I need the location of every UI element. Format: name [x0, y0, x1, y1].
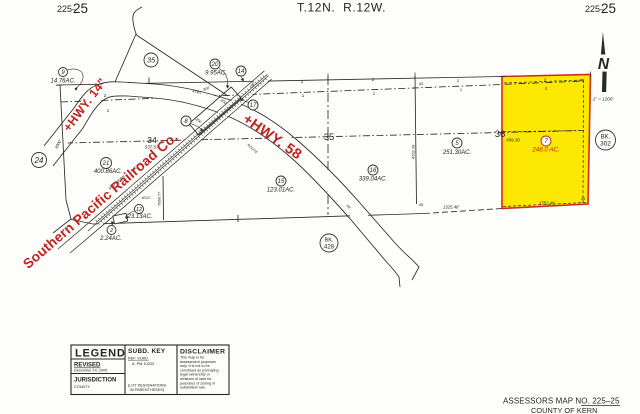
svg-text:300': 300' — [202, 86, 210, 92]
svg-text:T.12N. R.12W.: T.12N. R.12W. — [297, 1, 386, 15]
svg-text:December 14, 2005: December 14, 2005 — [74, 369, 107, 373]
svg-text:45: 45 — [419, 202, 424, 207]
svg-text:21: 21 — [102, 161, 110, 167]
svg-text:1: 1 — [107, 108, 110, 113]
svg-text:ROUTE: ROUTE — [246, 143, 258, 155]
svg-text:2: 2 — [301, 79, 304, 84]
svg-text:1752.46': 1752.46' — [539, 201, 556, 206]
svg-text:ASSESSORS MAP NO. 225–25: ASSESSORS MAP NO. 225–25 — [503, 397, 620, 406]
svg-text:251.30AC.: 251.30AC. — [442, 150, 471, 156]
svg-text:A. PM 10333: A. PM 10333 — [132, 362, 154, 366]
svg-text:2.24AC.: 2.24AC. — [99, 236, 122, 242]
svg-text:400.86AC.: 400.86AC. — [94, 169, 122, 175]
svg-text:(LOT DESIGNATIONS: (LOT DESIGNATIONS — [128, 384, 167, 388]
svg-text:35: 35 — [324, 132, 335, 143]
svg-text:12: 12 — [136, 207, 142, 213]
svg-text:1" = 1200': 1" = 1200' — [593, 97, 614, 102]
svg-text:20: 20 — [211, 62, 219, 68]
svg-text:36: 36 — [495, 129, 506, 140]
svg-text:subdivision law.: subdivision law. — [180, 386, 206, 390]
svg-text:DISCLAIMER: DISCLAIMER — [180, 349, 225, 356]
svg-text:16: 16 — [370, 168, 377, 174]
svg-text:+HWY. 58: +HWY. 58 — [240, 111, 305, 163]
svg-text:2: 2 — [372, 77, 375, 82]
svg-text:9.95AC.: 9.95AC. — [205, 71, 227, 77]
svg-text:7068.77: 7068.77 — [157, 191, 162, 206]
svg-text:1: 1 — [373, 91, 376, 96]
svg-text:248.0 AC.: 248.0 AC. — [531, 147, 559, 154]
svg-text:4011': 4011' — [141, 195, 151, 200]
svg-text:35: 35 — [147, 56, 156, 65]
svg-text:23.13AC.: 23.13AC. — [126, 214, 152, 220]
svg-text:45: 45 — [580, 78, 585, 83]
svg-text:14: 14 — [238, 69, 245, 75]
svg-text:1: 1 — [302, 93, 305, 98]
svg-text:45: 45 — [581, 196, 586, 201]
svg-text:REF. SUBD.: REF. SUBD. — [128, 357, 149, 361]
svg-text:JURISDICTION: JURISDICTION — [74, 378, 116, 384]
svg-text:14.76AC.: 14.76AC. — [50, 79, 75, 85]
svg-text:43: 43 — [419, 81, 424, 86]
svg-text:499.30: 499.30 — [506, 138, 520, 143]
svg-text:2: 2 — [457, 78, 460, 83]
svg-text:1325.46': 1325.46' — [443, 205, 460, 210]
svg-text:COUNTY: COUNTY — [74, 385, 90, 389]
svg-text:BK.: BK. — [324, 238, 333, 244]
svg-text:15: 15 — [278, 179, 285, 185]
svg-text:LEGEND: LEGEND — [75, 348, 126, 360]
svg-text:123.01AC.: 123.01AC. — [267, 188, 295, 194]
svg-text:COUNTY OF KERN: COUNTY OF KERN — [531, 406, 598, 414]
svg-text:1: 1 — [460, 87, 463, 92]
svg-text:24: 24 — [34, 156, 44, 165]
svg-text:IN PARENTHESES): IN PARENTHESES) — [130, 388, 165, 392]
svg-text:4702.39: 4702.39 — [411, 144, 416, 159]
svg-text:339.04AC.: 339.04AC. — [359, 177, 387, 183]
svg-text:25: 25 — [601, 1, 616, 16]
svg-text:SUBD. KEY: SUBD. KEY — [128, 348, 166, 355]
svg-text:25: 25 — [73, 1, 88, 16]
svg-text:428: 428 — [324, 245, 335, 251]
svg-text:N: N — [598, 56, 610, 73]
svg-text:17: 17 — [250, 103, 257, 109]
svg-text:2: 2 — [109, 228, 113, 234]
svg-text:302: 302 — [600, 141, 611, 148]
